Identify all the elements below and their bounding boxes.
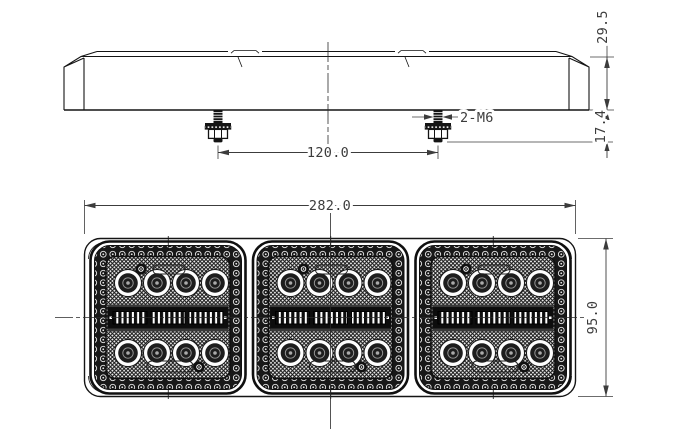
thread-callout: 2-M6 [412, 110, 494, 126]
led-lamp-dimension-drawing: 120.0 2-M6 29.5 17.4 [0, 0, 689, 431]
dim-overall-width-text: 282.0 [309, 198, 351, 214]
side-view: 120.0 2-M6 29.5 17.4 [64, 10, 614, 161]
dim-stud-length-text: 17.4 [593, 110, 609, 144]
mounting-bolt-left [205, 110, 231, 142]
dim-total-height-text: 29.5 [595, 10, 611, 44]
thread-callout-text: 2-M6 [460, 110, 494, 126]
front-view: 282.0 95.0 [55, 198, 613, 429]
dim-total-height: 29.5 [589, 10, 614, 110]
dim-body-height-text: 95.0 [585, 301, 601, 335]
dim-stud-spacing-text: 120.0 [307, 145, 349, 161]
lamp-body-profile [64, 51, 589, 110]
mounting-bolt-right [425, 110, 451, 142]
dim-stud-spacing: 120.0 [218, 145, 438, 161]
dim-overall-width: 282.0 [85, 198, 576, 234]
technical-drawing-canvas: 120.0 2-M6 29.5 17.4 [0, 0, 689, 431]
